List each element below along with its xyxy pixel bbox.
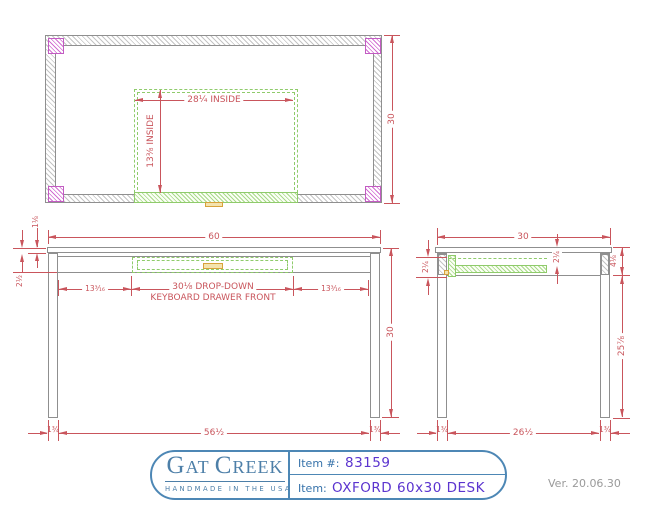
dim-leg-front: 1¾ [436, 425, 448, 435]
dimension-arrowhead [285, 98, 293, 102]
dimension-line [368, 280, 369, 296]
item-number-label: Item #: [298, 457, 339, 470]
dimension-arrowhead [135, 98, 143, 102]
dim-front-height: 30 [386, 323, 396, 340]
title-block-divider-horizontal [290, 474, 506, 475]
dimension-arrowhead [390, 35, 394, 43]
drawer-handle-plan [205, 202, 223, 207]
dim-drawer-label-1: 30⅛ DROP-DOWN [169, 282, 256, 292]
dimension-arrowhead [381, 431, 389, 435]
item-number-value: 83159 [345, 455, 390, 471]
dim-leg-left: 1¾ [47, 425, 59, 435]
dimension-line [384, 203, 400, 204]
dim-floor-clearance: 25⅞ [617, 333, 627, 359]
front-view-top [47, 247, 381, 253]
dimension-line [131, 276, 132, 296]
dimension-arrowhead [158, 90, 162, 98]
spec-sheet: 28¼ INSIDE 13⅜ INSIDE 30 60 1⅛ 2½ 13³⁄₁₆ [0, 0, 656, 507]
brand-text: G [167, 452, 186, 479]
dimension-arrowhead [620, 248, 624, 256]
dimension-arrowhead [620, 267, 624, 275]
dim-drawer-clearance: 2¼ [552, 248, 562, 266]
side-view-back-leg [600, 253, 610, 418]
side-back-apron-section [601, 254, 609, 275]
front-view-left-leg [48, 253, 58, 418]
dimension-arrowhead [35, 253, 39, 261]
dim-apron-drop: 4⅛ [609, 255, 619, 267]
item-name-value: OXFORD 60x30 DESK [332, 480, 485, 496]
dimension-arrowhead [59, 287, 67, 291]
dimension-arrowhead [372, 235, 380, 239]
dimension-line [382, 417, 399, 418]
drawing-primitive: C [215, 452, 233, 479]
dim-side-depth: 30 [514, 232, 531, 242]
dimension-arrowhead [48, 235, 56, 239]
dimension-line [380, 230, 381, 244]
dim-front-width: 60 [205, 232, 222, 242]
drawing-primitive: AT [186, 457, 215, 477]
dimension-line [13, 248, 46, 249]
dimension-arrowhead [389, 248, 393, 256]
dimension-arrowhead [20, 240, 24, 248]
dim-leg-right: 1¾ [369, 425, 381, 435]
dimension-arrowhead [35, 240, 39, 248]
leg-section-top-right [365, 38, 381, 54]
dim-right-offset: 13³⁄₁₆ [318, 284, 344, 294]
dimension-line [13, 272, 57, 273]
dimension-arrowhead [123, 287, 131, 291]
dimension-line [22, 262, 23, 272]
version-text: Ver. 20.06.30 [548, 477, 621, 490]
dim-leg-back: 1¾ [599, 425, 611, 435]
drawer-open-position [448, 258, 547, 259]
dimension-arrowhead [555, 239, 559, 247]
dim-between-legs-side: 26½ [510, 428, 536, 438]
dimension-arrowhead [360, 287, 368, 291]
dim-drawer-front-height: 2¼ [421, 258, 431, 276]
dimension-arrowhead [294, 287, 302, 291]
dim-inside-depth: 13⅜ INSIDE [146, 114, 156, 167]
dimension-arrowhead [59, 431, 67, 435]
item-name-label: Item: [298, 482, 327, 495]
dim-left-offset: 13³⁄₁₆ [82, 284, 108, 294]
dimension-line [416, 277, 447, 278]
dim-drawer-label-2: KEYBOARD DRAWER FRONT [150, 293, 275, 303]
drawer-platform-section [455, 265, 547, 273]
dimension-arrowhead [390, 195, 394, 203]
outline-line [447, 275, 600, 276]
dimension-arrowhead [132, 287, 140, 291]
dim-top-view-depth: 30 [387, 110, 397, 127]
leg-section-bottom-left [48, 186, 64, 202]
dimension-arrowhead [602, 235, 610, 239]
front-view-right-leg [370, 253, 380, 418]
dim-top-thickness: 1⅛ [31, 216, 41, 228]
leg-section-top-left [48, 38, 64, 54]
dimension-arrowhead [591, 431, 599, 435]
dimension-arrowhead [620, 409, 624, 417]
dimension-line [293, 276, 294, 296]
dimension-line [160, 90, 161, 193]
dim-between-legs-front: 56½ [201, 428, 227, 438]
brand-tagline: HANDMADE IN THE USA [165, 485, 287, 493]
dimension-arrowhead [389, 409, 393, 417]
dimension-arrowhead [361, 431, 369, 435]
dimension-arrowhead [437, 235, 445, 239]
brand-rule [165, 481, 285, 482]
drawer-handle-elevation [203, 263, 223, 269]
dimension-arrowhead [620, 276, 624, 284]
dimension-arrowhead [285, 287, 293, 291]
dimension-arrowhead [426, 249, 430, 257]
dimension-line [428, 285, 429, 295]
dimension-line [37, 261, 38, 268]
drawing-primitive: REEK [232, 457, 283, 477]
dimension-line [610, 228, 611, 245]
dimension-line [557, 273, 558, 284]
dimension-arrowhead [448, 431, 456, 435]
brand-logo: GAT CREEK [165, 454, 285, 481]
dim-inside-width: 28¼ INSIDE [184, 95, 243, 105]
side-view-top [435, 247, 612, 253]
leg-section-bottom-right [365, 186, 381, 202]
dimension-arrowhead [20, 254, 24, 262]
drawer-handle-section [444, 270, 449, 275]
dimension-line [613, 418, 630, 419]
dimension-arrowhead [611, 431, 619, 435]
dimension-arrowhead [158, 185, 162, 193]
dim-apron-height: 2½ [15, 275, 25, 287]
top-view [45, 35, 382, 203]
